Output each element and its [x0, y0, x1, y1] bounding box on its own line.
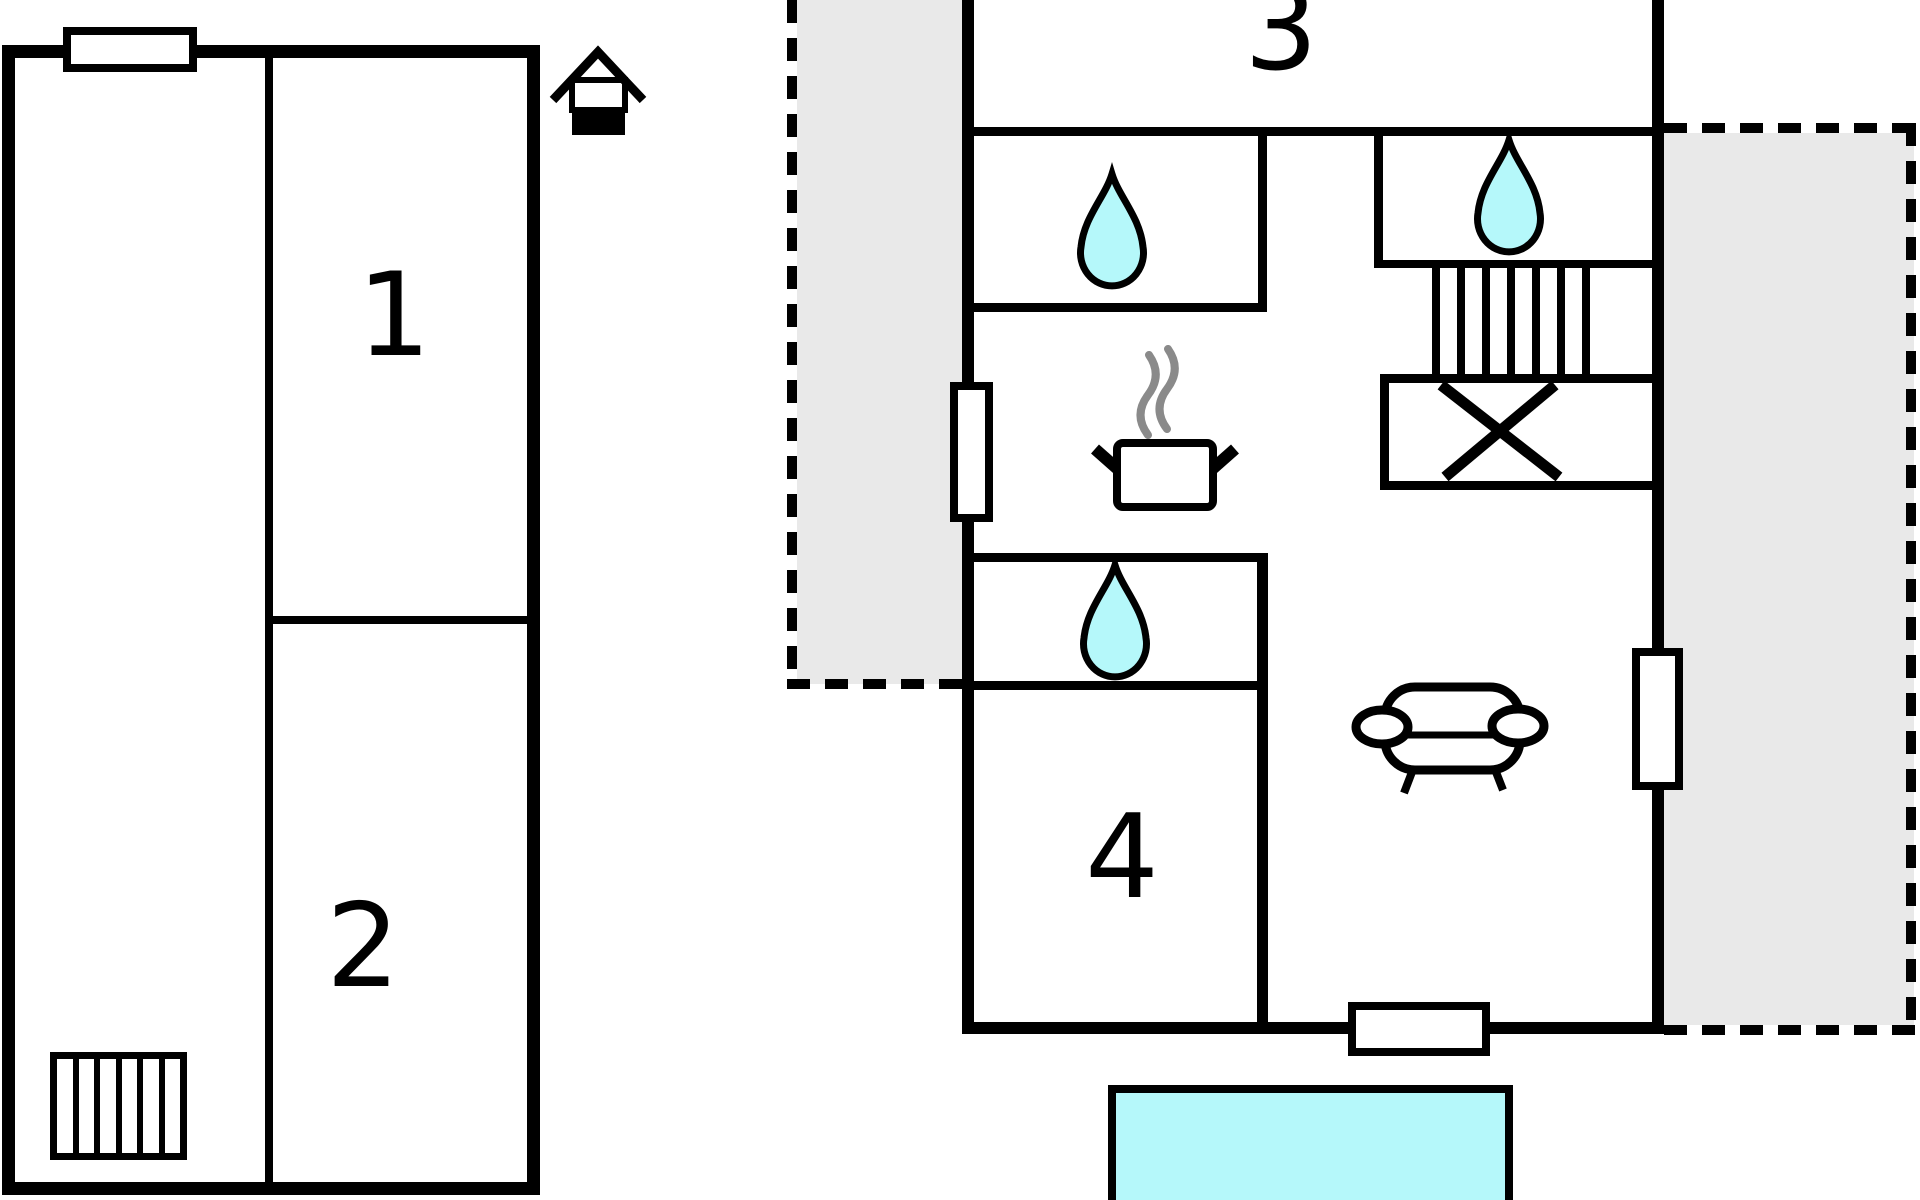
main-wall-bottom — [962, 1022, 1664, 1034]
sofa-icon — [1350, 680, 1550, 800]
room-2-label: 2 — [326, 889, 400, 1005]
stair-tread — [1532, 268, 1540, 374]
terrace-right-dashed-border-top — [1664, 123, 1920, 133]
stair-tread — [1507, 268, 1515, 374]
water-drop-icon — [1074, 169, 1150, 293]
terrace-zone-left — [797, 0, 962, 684]
main-wall-right — [1652, 0, 1664, 1034]
water-drop-icon — [1471, 135, 1547, 259]
stair-tread — [1457, 268, 1465, 374]
steam-wave — [1160, 349, 1175, 429]
bath-right-wall-left — [1374, 136, 1383, 268]
stair-tread — [143, 1059, 159, 1153]
main-wall-below-room3 — [974, 127, 1652, 136]
stair-tread — [100, 1059, 116, 1153]
steam-wave — [1141, 355, 1156, 435]
stove-pot-icon — [1085, 345, 1245, 515]
annex-stairs-icon — [50, 1052, 187, 1160]
terrace-zone-right — [1664, 133, 1914, 1025]
bath-left-wall-right — [1258, 136, 1267, 311]
stair-tread — [1582, 268, 1590, 374]
main-door-left — [950, 382, 993, 522]
terrace-left-dashed-border-bottom — [787, 679, 962, 689]
annex-window-top — [63, 27, 197, 72]
stair-tread — [1432, 268, 1440, 374]
stair-tread — [1557, 268, 1565, 374]
main-window-right — [1632, 648, 1683, 790]
pool — [1108, 1085, 1513, 1200]
stair-tread — [57, 1059, 73, 1153]
storage-x-icon — [1380, 374, 1652, 490]
main-door-bottom — [1348, 1002, 1490, 1056]
room-4-label: 4 — [1085, 800, 1159, 916]
room-3-label: 3 — [1244, 0, 1318, 88]
floor-plan-canvas: 1 2 — [0, 0, 1920, 1200]
stair-tread — [122, 1059, 138, 1153]
bath-left-wall-bottom — [974, 303, 1267, 312]
stair-tread — [1482, 268, 1490, 374]
bath-right-wall-bottom — [1374, 260, 1652, 268]
annex-wall-left — [2, 45, 15, 1195]
terrace-right-dashed-border-right — [1906, 123, 1916, 1035]
room-1-label: 1 — [357, 258, 431, 374]
stair-tread — [165, 1059, 181, 1153]
terrace-left-dashed-border-left — [787, 0, 797, 689]
main-stairs-icon — [1432, 268, 1590, 374]
kitchen-wall-right — [1257, 553, 1268, 1022]
terrace-right-dashed-border-bottom — [1664, 1025, 1920, 1035]
house-icon — [545, 45, 651, 141]
water-drop-icon — [1077, 560, 1153, 684]
annex-divider-horizontal — [269, 616, 533, 624]
stair-tread — [79, 1059, 95, 1153]
